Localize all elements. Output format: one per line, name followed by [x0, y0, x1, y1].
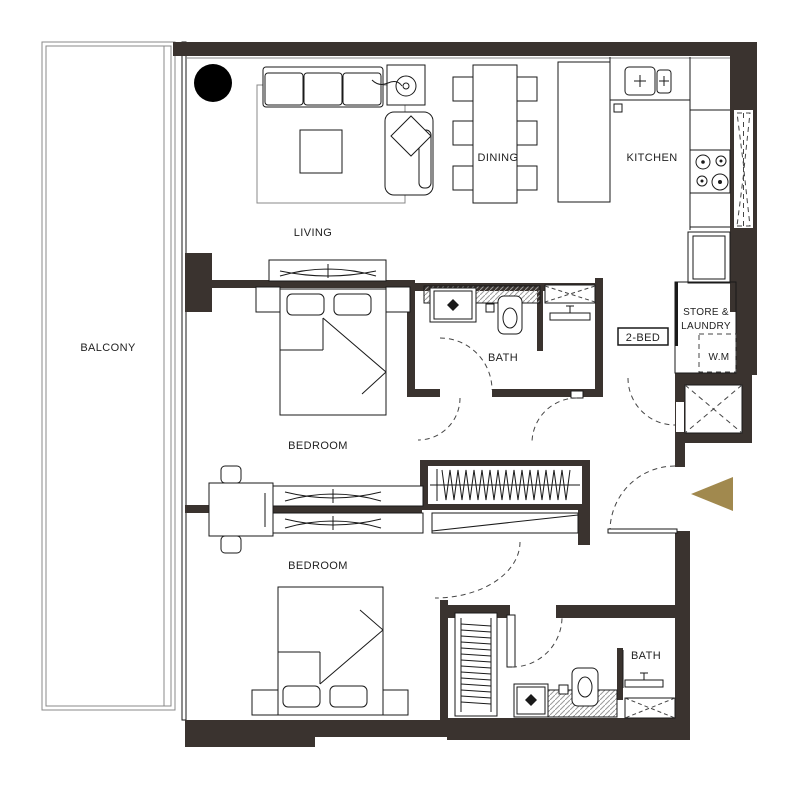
kitchen-outlet: [614, 104, 622, 112]
shower-head-top-icon: [550, 306, 590, 320]
window-wall: [182, 42, 186, 720]
kitchen-sink-icon: [625, 67, 671, 95]
entry-arrow-icon: [691, 477, 733, 511]
burner-dot: [701, 180, 704, 183]
wash-basin-icon: [514, 684, 548, 717]
wall-bottom-left: [185, 720, 315, 747]
lamp-table: [387, 65, 425, 105]
bedside-table-icon: [252, 690, 278, 715]
balcony: [42, 42, 186, 720]
bedside-table-icon: [256, 287, 280, 312]
label-bedroom-top: BEDROOM: [288, 440, 348, 452]
label-bath-top: BATH: [488, 352, 518, 364]
wall-bath2-left: [617, 648, 623, 700]
armchair-icon: [385, 112, 433, 195]
paper-holder: [486, 304, 494, 312]
shower-bar: [550, 313, 590, 320]
tv-console-bedroom2-icon: [273, 513, 423, 533]
shower-tray-bottom-icon: [625, 698, 675, 718]
label-balcony: BALCONY: [80, 342, 136, 354]
unit-badge: 2-BED: [618, 328, 668, 345]
floor-plan-canvas: BALCONY LIVING DINING KITCHEN STORE & LA…: [0, 0, 800, 800]
bedroom2-door-swing: [435, 542, 520, 598]
toilet-icon: [572, 668, 598, 706]
wall-corridor-top-right: [556, 605, 690, 618]
bedroom1-door-swing: [418, 398, 460, 440]
sofa-icon: [263, 67, 383, 107]
stool: [221, 466, 241, 483]
label-kitchen: KITCHEN: [626, 152, 677, 164]
entry-threshold: [608, 529, 677, 533]
burner-dot: [720, 160, 723, 163]
wall-top: [173, 42, 757, 56]
shower-door-leaf: [571, 391, 583, 398]
label-living: LIVING: [294, 227, 332, 239]
wall-bottom-right: [447, 718, 690, 740]
bath1-door-swing: [440, 338, 492, 390]
label-dining: DINING: [478, 152, 519, 164]
store-door-swing: [628, 378, 675, 425]
shower-head-bottom-icon: [625, 673, 663, 687]
unit-badge-label: 2-BED: [626, 332, 660, 344]
wall-right-mid: [736, 312, 757, 375]
corridor-door-leaf: [507, 615, 515, 667]
bedside-table-icon: [386, 287, 410, 312]
cooktop-icon: [690, 150, 730, 193]
floor-plan: BALCONY LIVING DINING KITCHEN STORE & LA…: [0, 0, 800, 800]
label-store-line2: LAUNDRY: [681, 321, 731, 332]
bath1-door-gap: [440, 389, 492, 397]
bedside-table-icon: [383, 690, 408, 715]
coffee-table-icon: [300, 130, 342, 173]
bathroom-top: [424, 285, 595, 443]
label-bath-bottom: BATH: [631, 650, 661, 662]
shower-stem: [566, 306, 574, 313]
label-bedroom-bottom: BEDROOM: [288, 560, 348, 572]
washroom-bottom: [455, 613, 675, 718]
toilet-body: [572, 668, 598, 706]
burner-dot: [701, 160, 705, 164]
balcony-rail-outer: [42, 42, 175, 710]
burner-dot: [718, 180, 722, 184]
entry-door-swing: [610, 466, 675, 531]
bedroom-bottom-room: [252, 513, 423, 715]
tv-console-bedroom1-icon: [273, 486, 423, 506]
wash-basin-icon: [430, 288, 476, 322]
tall-cabinet-icon: [688, 232, 730, 283]
corridor-door-swing: [512, 617, 562, 667]
balcony-rail-inner: [46, 46, 171, 706]
living-room: [194, 64, 433, 281]
tv-console-living-icon: [269, 260, 386, 281]
tray-outline: [545, 285, 595, 303]
shower-door-swing: [532, 398, 577, 443]
wall-block-living: [185, 253, 212, 312]
toilet-icon: [498, 296, 522, 334]
stool: [221, 536, 241, 553]
double-bed-top-icon: [280, 289, 386, 415]
shower-bar: [625, 680, 663, 687]
dining-area: [453, 65, 537, 203]
room-labels: BALCONY LIVING DINING KITCHEN STORE & LA…: [80, 152, 731, 662]
shower-tray-top-icon: [545, 285, 595, 303]
dining-table-icon: [473, 65, 517, 203]
double-bed-bottom-icon: [278, 587, 383, 715]
wall-bath1-right: [595, 278, 603, 397]
kitchen-area: [558, 57, 750, 283]
tv-console: [273, 486, 423, 506]
tv-console: [273, 513, 423, 533]
entry-wall-stub: [675, 443, 685, 467]
label-store-line1: STORE &: [683, 307, 729, 318]
shower-stem: [640, 673, 648, 680]
column-icon: [194, 64, 232, 102]
label-wm: W.M: [709, 352, 730, 363]
wall-right-lower: [675, 531, 690, 740]
bed-frame: [280, 289, 386, 415]
dressing-table-icon: [209, 466, 273, 553]
paper-holder: [559, 685, 568, 694]
closet-below-icon: [432, 513, 578, 533]
cabinet-outer: [688, 232, 730, 283]
shaft-slot: [676, 402, 684, 432]
wall-bottom-mid: [315, 720, 447, 737]
dresser: [209, 483, 273, 536]
kitchen-island-icon: [558, 62, 610, 202]
wardrobe-side-icon: [455, 613, 497, 716]
